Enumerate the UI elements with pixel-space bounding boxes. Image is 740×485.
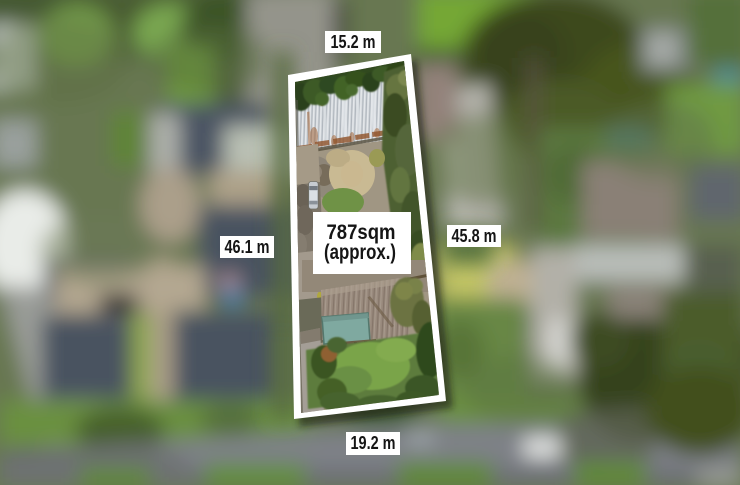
- svg-text:46.1 m: 46.1 m: [225, 237, 270, 257]
- svg-text:19.2 m: 19.2 m: [351, 433, 396, 453]
- svg-text:(approx.): (approx.): [324, 240, 396, 264]
- svg-text:15.2 m: 15.2 m: [331, 32, 376, 52]
- svg-text:45.8 m: 45.8 m: [452, 226, 497, 246]
